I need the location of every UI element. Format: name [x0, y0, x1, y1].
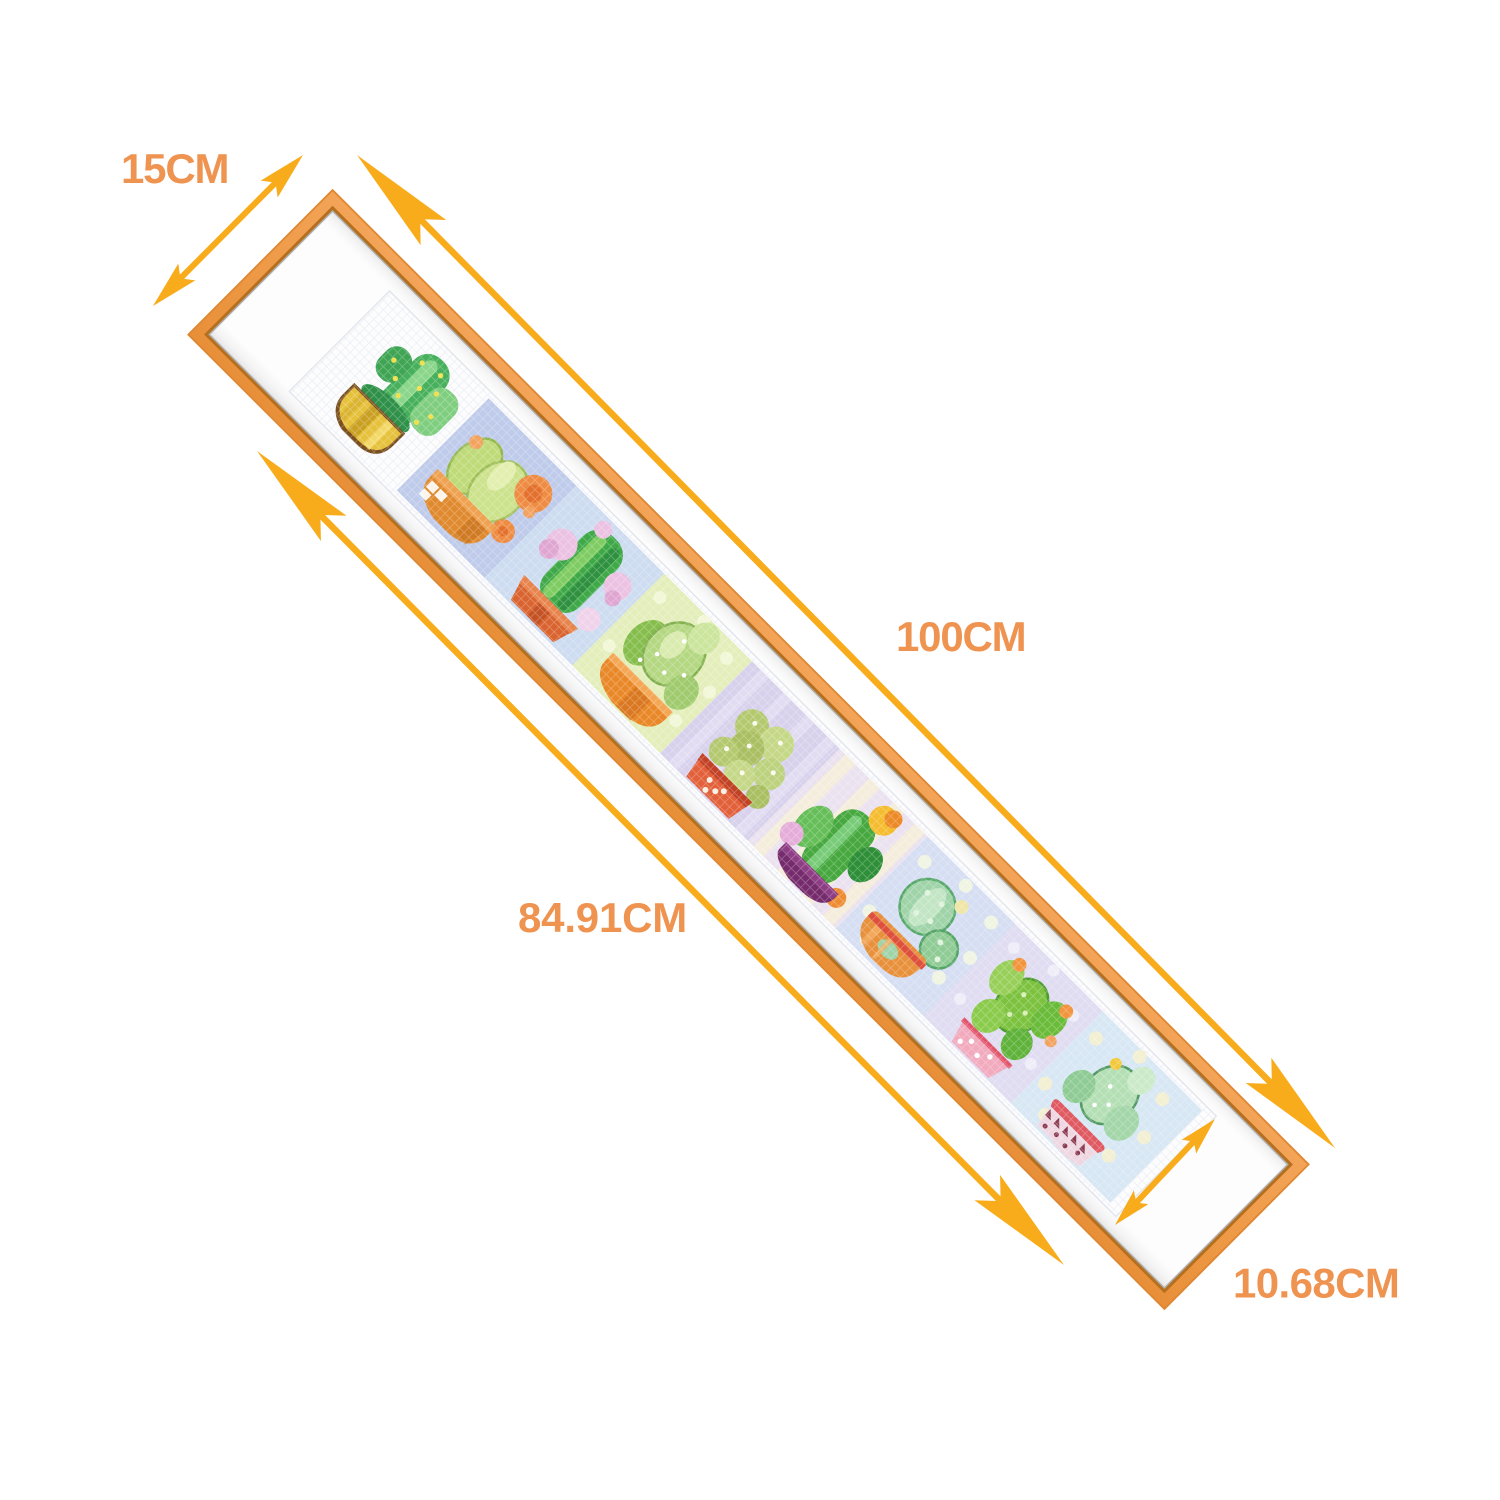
svg-text:15CM: 15CM [121, 145, 228, 192]
svg-text:100CM: 100CM [896, 613, 1025, 660]
svg-text:84.91CM: 84.91CM [518, 894, 687, 941]
svg-text:10.68CM: 10.68CM [1233, 1260, 1399, 1307]
